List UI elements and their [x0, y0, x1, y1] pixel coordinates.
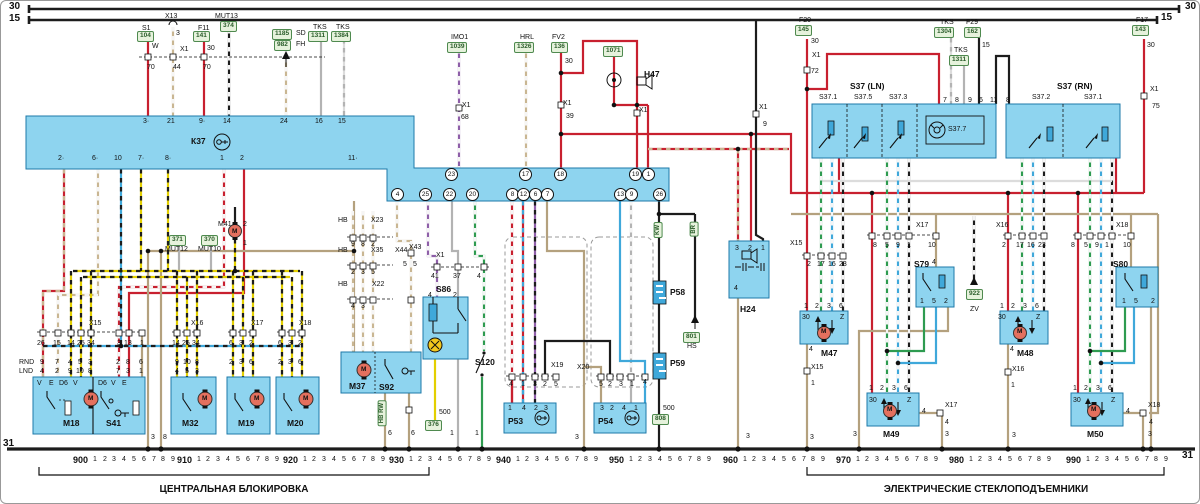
s37-7-box [926, 116, 984, 144]
caption-power-windows: ЭЛЕКТРИЧЕСКИЕ СТЕКЛОПОДЪЕМНИКИ [884, 484, 1088, 495]
m37-s92-block [341, 352, 421, 393]
m32-block [171, 377, 216, 434]
arrow-up-icon [691, 315, 699, 329]
wiring-diagram-page: 301530153131S1104W70X133X144F111413070MU… [0, 0, 1200, 504]
p53-block [504, 403, 556, 433]
k37-relay-block [26, 116, 669, 201]
s79-block [916, 267, 954, 307]
s80-block [1116, 267, 1158, 307]
m19-block [227, 377, 270, 434]
caption-central-locking: ЦЕНТРАЛЬНАЯ БЛОКИРОВКА [160, 484, 309, 495]
h24-block [729, 241, 769, 298]
section-brackets [39, 467, 1164, 475]
blocks [26, 104, 1158, 434]
x13-hook-icon [169, 21, 177, 25]
horn-icon [637, 75, 652, 89]
arrow-up-icon [970, 277, 978, 285]
p54-block [594, 403, 646, 433]
wiring-diagram [1, 1, 1200, 504]
s120-switch-icon [476, 351, 486, 376]
arrow-up-icon [282, 51, 290, 67]
m20-block [276, 377, 319, 434]
motor-icon [229, 222, 242, 240]
